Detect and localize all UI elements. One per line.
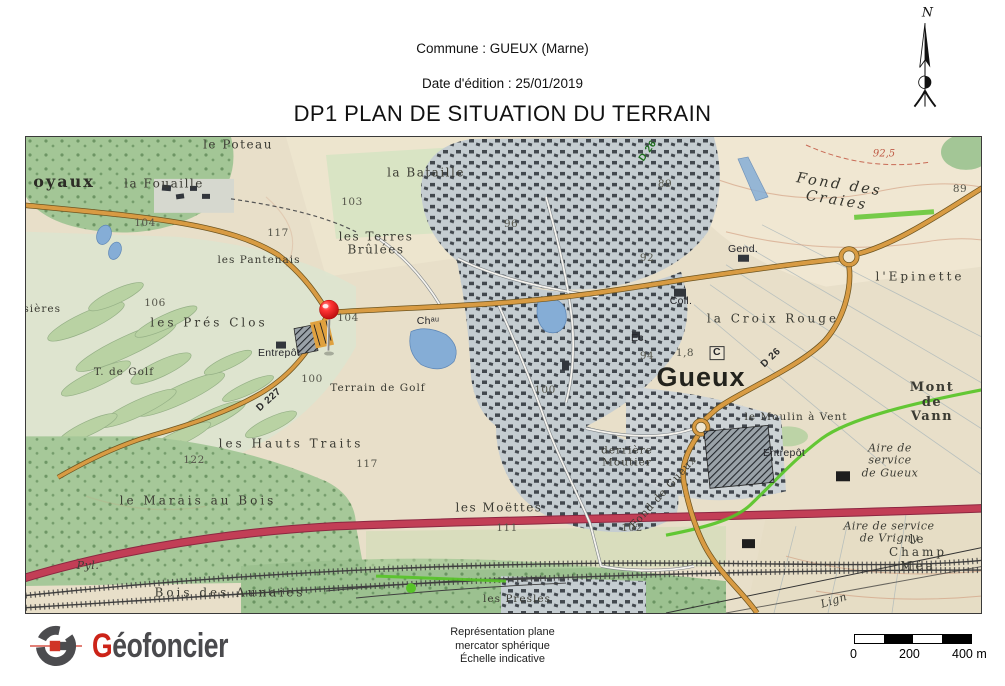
map-label: les Hauts Traits: [219, 437, 364, 450]
map-label: C: [710, 346, 725, 360]
map-label: Chᵃᵘ: [417, 316, 440, 328]
map-label: 117: [267, 228, 289, 240]
map-label: le Poteau: [203, 138, 273, 151]
page-title: DP1 PLAN DE SITUATION DU TERRAIN: [0, 101, 1005, 127]
map-label: 104: [337, 313, 359, 325]
map-label: 111: [496, 523, 518, 535]
map-label: D 26: [637, 138, 659, 163]
map-label: la Fouaille: [124, 177, 204, 190]
map-labels-layer: oyauxla Fouaillele Poteaula Batailleles …: [26, 137, 981, 613]
map-label: T. de Golf: [94, 367, 154, 379]
map-label: les Prés Clos: [150, 316, 267, 329]
map-label: D 26: [759, 346, 783, 370]
map-label: 106: [144, 298, 166, 310]
map-label: le Moulin à Vent: [745, 412, 848, 424]
map-label: 92,5: [873, 148, 895, 159]
map-label: Aire de service de Gueux: [845, 443, 936, 480]
map-label: les Terres Brûlées: [339, 231, 414, 258]
map-label: la Bataille: [387, 166, 465, 179]
map-label: Fond de Gueux: [628, 454, 699, 531]
map-label: oyaux: [33, 173, 95, 191]
map-label: Gend.: [728, 244, 758, 256]
map-label: les Moëttes: [456, 501, 543, 514]
map-label: Entrepôt: [258, 348, 300, 360]
map-label: 102: [621, 523, 643, 535]
map-label: Terrain de Golf: [330, 383, 425, 395]
edition-date-line: Date d'édition : 25/01/2019: [0, 76, 1005, 91]
map-label: Mont de Vann: [908, 381, 957, 425]
map-label: Entrepôt: [763, 448, 805, 460]
map-frame: oyauxla Fouaillele Poteaula Batailleles …: [25, 136, 982, 614]
map-label: D 227: [254, 386, 283, 414]
map-label: Aire de service de Vrigny: [843, 521, 935, 546]
north-label: N: [921, 5, 934, 20]
scale-tick-200: 200: [899, 647, 920, 661]
map-label: 89: [953, 184, 967, 196]
map-label: 100: [301, 374, 323, 386]
map-label: 100: [534, 385, 556, 397]
map-label: Bois des Aunaies: [155, 586, 306, 599]
scale-tick-400: 400 m: [952, 647, 987, 661]
map-label: 94: [640, 351, 654, 363]
map-label: le Marais au Bois: [120, 494, 277, 507]
map-label: les Presles: [483, 594, 551, 606]
map-label: 92: [640, 253, 654, 265]
map-label: Pyl.: [77, 560, 100, 572]
map-label: 104: [134, 218, 156, 230]
map-label: 89: [658, 179, 672, 191]
map-label: le Champ Méa: [887, 533, 950, 573]
scale-bar-segments: [854, 634, 972, 644]
map-label: les Pantenais: [217, 255, 300, 267]
map-label: Gueux: [656, 362, 745, 392]
map-label: Coll.: [670, 296, 693, 308]
map-label: 1,8: [676, 348, 694, 360]
commune-line: Commune : GUEUX (Marne): [0, 41, 1005, 56]
map-label: Lign: [819, 591, 848, 611]
scale-tick-0: 0: [850, 647, 857, 661]
map-label: 122: [183, 455, 205, 467]
map-label: derrière Moutier: [601, 445, 653, 469]
map-label: Fond des Craies: [765, 166, 911, 220]
scale-bar: 0 200 400 m: [852, 631, 1002, 665]
map-label: la Croix Rouge: [707, 312, 839, 325]
map-label: 96: [504, 219, 518, 231]
map-label: l'Epinette: [876, 270, 965, 283]
map-label: 103: [341, 197, 363, 209]
map-label: isières: [25, 304, 61, 316]
map-label: 117: [356, 459, 378, 471]
north-arrow: N: [905, 4, 945, 114]
map-label: Ec.: [631, 333, 647, 345]
